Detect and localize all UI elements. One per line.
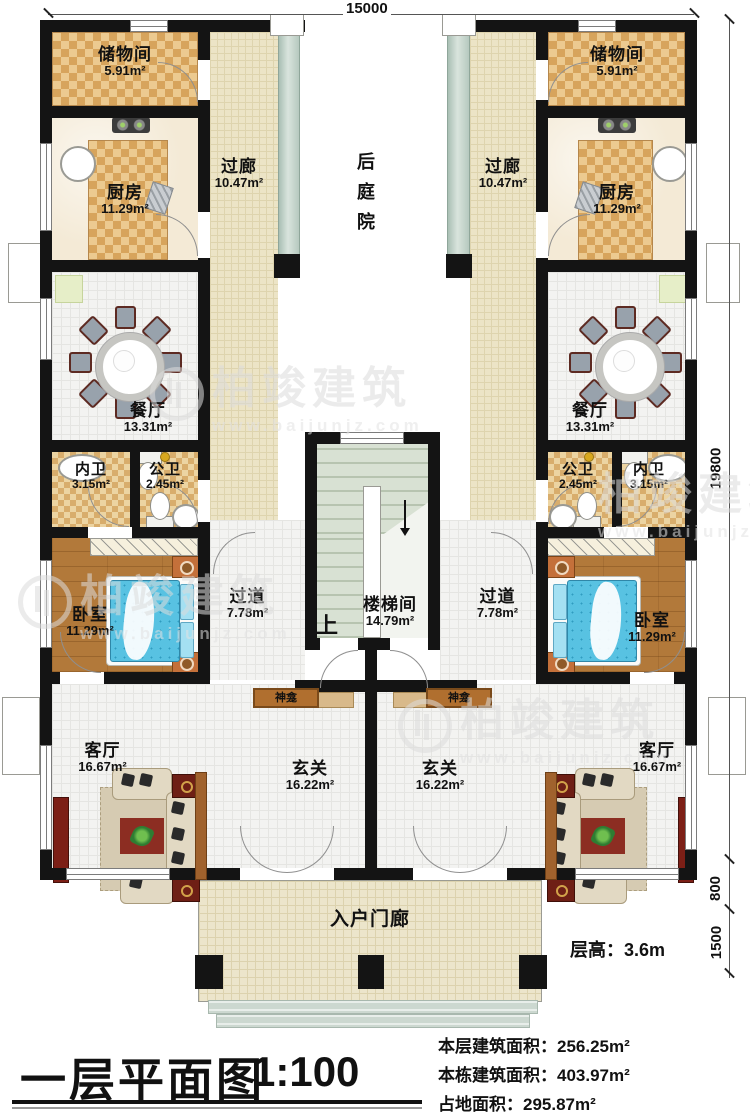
glass-wall-right: [447, 32, 470, 268]
shrine-shelf-right: [393, 692, 429, 708]
exterior-bay-left-dining: [8, 243, 42, 303]
room-label-foyer-right: 玄关16.22m²: [390, 760, 490, 792]
floor-corridor-left: [210, 32, 278, 520]
pillow-right-2: [553, 622, 567, 658]
room-label-dining-left: 餐厅13.31m²: [98, 402, 198, 434]
wall: [536, 106, 697, 118]
floor-height-note: 层高：3.6m: [570, 936, 665, 962]
stat-footprint-area: 占地面积：295.87m²: [438, 1090, 596, 1115]
dimension-right-step: 800: [707, 873, 724, 904]
pillow-left-1: [180, 584, 194, 620]
door-opening: [198, 212, 210, 258]
dining-chair: [115, 306, 136, 329]
dining-mat-left: [55, 275, 83, 303]
room-label-dining-right: 餐厅13.31m²: [540, 402, 640, 434]
wall: [40, 20, 305, 32]
room-label-hallway-left: 过道7.78m²: [200, 588, 295, 620]
stair-direction-arrow: [400, 528, 410, 536]
door-opening: [60, 672, 104, 684]
dimension-right-height: 19800: [707, 445, 724, 493]
wall: [195, 955, 223, 989]
door-opening: [390, 638, 428, 650]
room-label-living-left: 客厅16.67m²: [50, 742, 155, 774]
room-label-bath-public-left: 公卫2.45m²: [127, 462, 203, 491]
cushion-right-1: [582, 773, 596, 787]
room-label-kitchen-left: 厨房11.29m²: [75, 184, 175, 216]
window: [685, 143, 697, 231]
room-label-storage-right: 储物间5.91m²: [567, 46, 667, 78]
stove-right: [598, 117, 636, 133]
nightstand-right-1: [547, 556, 575, 578]
dining-table-right-center: [613, 350, 635, 372]
window: [40, 143, 52, 231]
door-arc: [390, 650, 428, 688]
floor-corridor-right: [470, 32, 536, 520]
cushion-left-2: [139, 773, 153, 787]
dining-table-left-center: [113, 350, 135, 372]
dimension-tick: [43, 8, 54, 19]
dining-chair: [569, 352, 592, 373]
window: [340, 432, 404, 444]
room-label-corridor-right: 过廊10.47m²: [467, 158, 539, 190]
room-label-bedroom-right: 卧室11.29m²: [602, 612, 702, 644]
column-right: [446, 254, 472, 278]
room-label-kitchen-right: 厨房11.29m²: [567, 184, 667, 216]
stat-floor-area: 本层建筑面积：256.25m²: [438, 1032, 630, 1057]
room-label-bath-private-left: 内卫3.15m²: [52, 462, 130, 491]
window: [40, 298, 52, 360]
cushion-left-3: [171, 801, 185, 815]
window: [575, 868, 679, 880]
wall: [40, 440, 210, 452]
wall: [40, 106, 210, 118]
cushion-left-1: [121, 773, 135, 787]
room-label-stairwell: 楼梯间14.79m²: [335, 596, 445, 628]
pillow-right-1: [553, 584, 567, 620]
column-left: [274, 254, 300, 278]
shrine-label-left: 神龛: [253, 689, 319, 707]
column-cap-left: [270, 14, 304, 36]
wood-screen-right: [545, 772, 557, 880]
door-opening: [536, 60, 548, 100]
stair-up-label: 上: [316, 608, 338, 640]
stat-building-area: 本栋建筑面积：403.97m²: [438, 1061, 630, 1086]
wall: [40, 260, 210, 272]
stove-left: [112, 117, 150, 133]
dining-chair: [615, 306, 636, 329]
wall: [519, 955, 547, 989]
kitchen-sink-right: [652, 146, 688, 182]
cushion-left-4: [171, 827, 185, 841]
door-opening: [630, 672, 674, 684]
door-opening: [536, 212, 548, 258]
window: [130, 20, 168, 32]
wall: [447, 20, 697, 32]
door-opening: [604, 527, 648, 538]
title-underline-2: [12, 1107, 422, 1109]
wardrobe-right: [547, 538, 655, 556]
stair-direction-line: [404, 500, 406, 528]
room-label-foyer-left: 玄关16.22m²: [260, 760, 360, 792]
window: [685, 298, 697, 360]
wall: [536, 260, 697, 272]
dining-mat-right: [659, 275, 687, 303]
dimension-line-right: [729, 20, 730, 978]
glass-wall-left: [278, 32, 300, 268]
window: [578, 20, 616, 32]
room-label-bath-private-right: 内卫3.15m²: [612, 462, 686, 491]
room-label-living-right: 客厅16.67m²: [602, 742, 712, 774]
shrine-shelf-left: [318, 692, 354, 708]
side-table-right-2: [547, 878, 575, 902]
kitchen-sink-left: [60, 146, 96, 182]
wood-screen-left: [195, 772, 207, 880]
room-label-bedroom-left: 卧室11.29m²: [42, 606, 138, 638]
shrine-label-right: 神龛: [426, 689, 492, 707]
door-opening: [88, 527, 132, 538]
nightstand-left-1: [172, 556, 200, 578]
cushion-left-5: [171, 851, 185, 865]
exterior-bay-left-living: [2, 697, 40, 775]
dimension-top-width: 15000: [343, 0, 391, 17]
room-label-corridor-left: 过廊10.47m²: [203, 158, 275, 190]
exterior-bay-right-living: [708, 697, 746, 775]
floor-plan-canvas: 储物间5.91m² 储物间5.91m² 过廊10.47m² 过廊10.47m² …: [0, 0, 750, 1117]
column-cap-right: [442, 14, 476, 36]
room-label-courtyard: 后庭院: [352, 152, 378, 252]
door-opening: [198, 60, 210, 100]
page-scale: 1:100: [252, 1048, 359, 1096]
side-table-left-2: [172, 878, 200, 902]
window: [66, 868, 170, 880]
room-label-bath-public-right: 公卫2.45m²: [540, 462, 616, 491]
wall: [358, 955, 384, 989]
porch-step-2: [216, 1014, 530, 1028]
wardrobe-left: [90, 538, 198, 556]
title-underline: [12, 1100, 422, 1104]
dimension-tick: [689, 8, 700, 19]
room-label-storage-left: 储物间5.91m²: [75, 46, 175, 78]
room-label-hallway-right: 过道7.78m²: [450, 588, 545, 620]
pillow-left-2: [180, 622, 194, 658]
door-arc: [320, 650, 358, 688]
porch-step-1: [208, 1000, 538, 1014]
dining-chair: [69, 352, 92, 373]
exterior-bay-right-dining: [706, 243, 740, 303]
room-label-porch: 入户门廊: [300, 910, 440, 931]
cushion-right-2: [600, 773, 614, 787]
wall: [536, 440, 697, 452]
dimension-right-porch: 1500: [708, 923, 725, 962]
